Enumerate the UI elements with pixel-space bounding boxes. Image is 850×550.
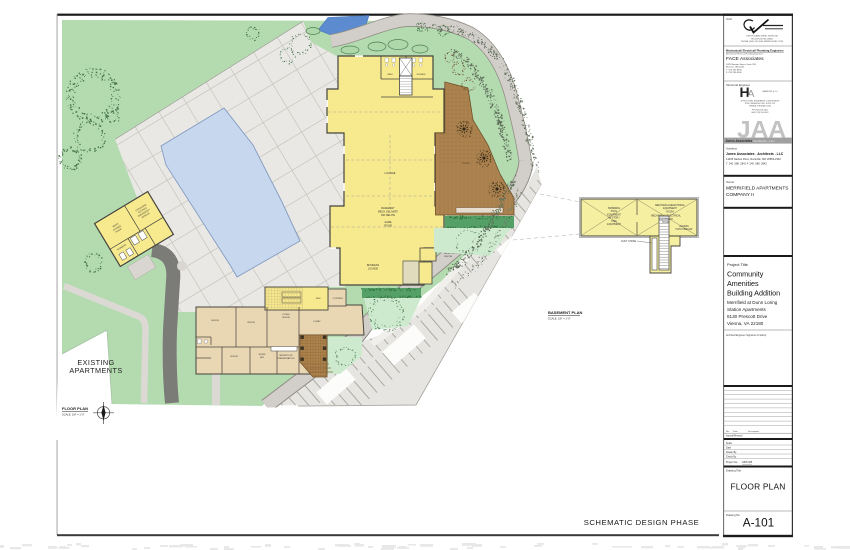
svg-text:A-101: A-101 [743,516,774,530]
svg-text:ROOM: ROOM [662,222,669,224]
svg-text:SWIMMING: SWIMMING [608,208,620,210]
svg-text:Mechanical Electrical Plumbing: Mechanical Electrical Plumbing Engineers [726,52,763,55]
svg-text:Owner: Owner [726,180,734,184]
svg-text:OFFICE: OFFICE [211,320,220,322]
svg-text:F. 703.790.9100: F. 703.790.9100 [726,72,742,74]
svg-text:Drawn By: Drawn By [726,451,737,454]
svg-text:RM. BELOW: RM. BELOW [381,214,395,217]
svg-text:1390 PICCARD DRIVE, SUITE 230: 1390 PICCARD DRIVE, SUITE 230 [746,35,778,38]
svg-text:McLean, VA 22101: McLean, VA 22101 [726,66,745,69]
svg-text:CONTROL: CONTROL [333,298,344,300]
svg-text:FACE Associates: FACE Associates [726,56,764,62]
svg-text:LIVING: LIVING [282,314,289,316]
svg-text:RM.: RM. [260,357,264,359]
svg-text:8130 Prescott Drive: 8130 Prescott Drive [727,314,768,319]
svg-text:T. 240. 588. 2841 F. 240. 588: T. 240. 588. 2841 F. 240. 588. 2842 [726,162,767,166]
svg-text:TIME: TIME [611,221,617,223]
svg-text:PHONE: (301) 931-1000, WWW.CV: PHONE: (301) 931-1000, WWW.CVLINC.COM [741,41,783,43]
svg-text:BUSINESS: BUSINESS [367,264,379,267]
svg-text:EQUIPMENT: EQUIPMENT [659,219,673,221]
svg-text:Drawing Title: Drawing Title [726,469,742,473]
svg-text:LOBBY: LOBBY [313,321,321,323]
svg-text:ACCESS: ACCESS [679,225,689,228]
svg-text:MECHANICAL/ELECTRICAL: MECHANICAL/ELECTRICAL [655,204,686,207]
svg-text:Scale: Scale [726,442,733,445]
svg-text:MECHANICAL/ELECTRICAL: MECHANICAL/ELECTRICAL [651,215,682,218]
svg-text:Vienna, VA 22180: Vienna, VA 22180 [727,321,764,326]
svg-text:MERRIFIELD APARTMENTS: MERRIFIELD APARTMENTS [726,186,788,192]
svg-text:LOUNGE: LOUNGE [385,171,396,175]
svg-text:Project Title: Project Title [727,262,749,267]
svg-text:OFFICE: OFFICE [230,356,239,358]
svg-text:0405-008: 0405-008 [742,461,753,464]
svg-text:Community: Community [727,270,764,279]
svg-text:RECEPTION: RECEPTION [280,355,293,357]
svg-text:BASEMENT PLAN: BASEMENT PLAN [548,310,583,315]
svg-text:PRESENTATION: PRESENTATION [278,357,295,360]
svg-text:FAX (703) 556-0652: FAX (703) 556-0652 [751,111,768,114]
svg-text:No.: No. [726,431,730,433]
svg-text:14405 Nadine Drive, Rockville,: 14405 Nadine Drive, Rockville, MD 20853-… [726,157,781,161]
svg-text:Date: Date [726,446,732,449]
svg-text:Drawing No.: Drawing No. [726,513,741,517]
svg-text:VESTIB.: VESTIB. [444,256,453,258]
svg-text:EQUIPMENT: EQUIPMENT [607,224,621,226]
svg-text:W/ STOR./: W/ STOR./ [608,218,619,220]
svg-text:EQUIPMENT: EQUIPMENT [663,208,677,210]
svg-text:DUCT CHASE: DUCT CHASE [621,240,636,243]
svg-text:Architect: Architect [726,147,737,151]
svg-text:ROCKVILLE, MD 20850: ROCKVILLE, MD 20850 [751,38,773,40]
svg-text:Architect/Engineer Signature &: Architect/Engineer Signature & Stamp [726,334,767,337]
svg-text:EQUIPMENT: EQUIPMENT [607,214,621,216]
svg-text:Merrifield at Dunn Loring: Merrifield at Dunn Loring [727,300,778,305]
svg-text:STRUCTURAL ENGINEERS CONSULTAN: STRUCTURAL ENGINEERS CONSULTANTS [741,100,780,103]
svg-text:Amenities: Amenities [727,279,759,288]
svg-text:ROOM: ROOM [666,211,673,213]
svg-text:MEN: MEN [388,74,393,76]
svg-text:A: A [748,88,755,100]
svg-text:POOL: POOL [611,211,618,213]
svg-text:WOMEN: WOMEN [417,74,426,76]
svg-text:Check By: Check By [726,455,737,458]
svg-text:Station Apartments: Station Apartments [727,307,767,312]
svg-text:LOUNGE: LOUNGE [368,268,379,271]
svg-text:Issued/Revised: Issued/Revised [726,435,743,438]
svg-text:Jones Associates . Architects: Jones Associates . Architects . LLC [726,152,784,156]
svg-text:ROOM: ROOM [384,224,391,227]
svg-text:Project No.: Project No. [726,461,738,464]
svg-text:Date: Date [733,430,738,433]
svg-text:Building Addition: Building Addition [727,289,780,298]
svg-text:FLOOR PLAN: FLOOR PLAN [730,482,785,492]
svg-text:DEN: DEN [316,298,321,300]
svg-text:PORCH: PORCH [462,163,470,165]
svg-text:SCALE: 1/8" = 1'-0": SCALE: 1/8" = 1'-0" [548,317,571,321]
svg-text:Jones Associates: Jones Associates [726,139,753,143]
svg-text:COMPANY II: COMPANY II [726,192,754,198]
svg-text:Description: Description [748,430,760,433]
svg-text:OFFICE: OFFICE [247,322,256,324]
svg-text:Mechanical/ Electrical/ Plumbi: Mechanical/ Electrical/ Plumbing Enginee… [726,49,784,53]
svg-text:: Architects . LLC: : Architects . LLC [752,139,776,143]
svg-text:HAMMOND & CO: HAMMOND & CO [762,90,778,93]
svg-text:FLOOR PLAN: FLOOR PLAN [62,406,88,411]
svg-text:SCHEMATIC DESIGN PHASE: SCHEMATIC DESIGN PHASE [584,518,700,527]
svg-text:1625 Newton Street, Suite 230: 1625 Newton Street, Suite 230 [726,63,757,66]
svg-text:VIENNA, VIRGINIA 22182: VIENNA, VIRGINIA 22182 [749,105,771,108]
svg-text:WORK: WORK [259,354,266,356]
svg-text:APARTMENTS: APARTMENTS [69,366,122,375]
svg-text:T. 703.790.9000: T. 703.790.9000 [726,69,742,71]
svg-text:Civil: Civil [726,17,732,21]
svg-text:HATCH BELOW: HATCH BELOW [676,228,694,231]
svg-text:SCALE: 1/8" = 1'-0": SCALE: 1/8" = 1'-0" [62,413,85,417]
svg-text:OFFICE: OFFICE [282,317,291,319]
